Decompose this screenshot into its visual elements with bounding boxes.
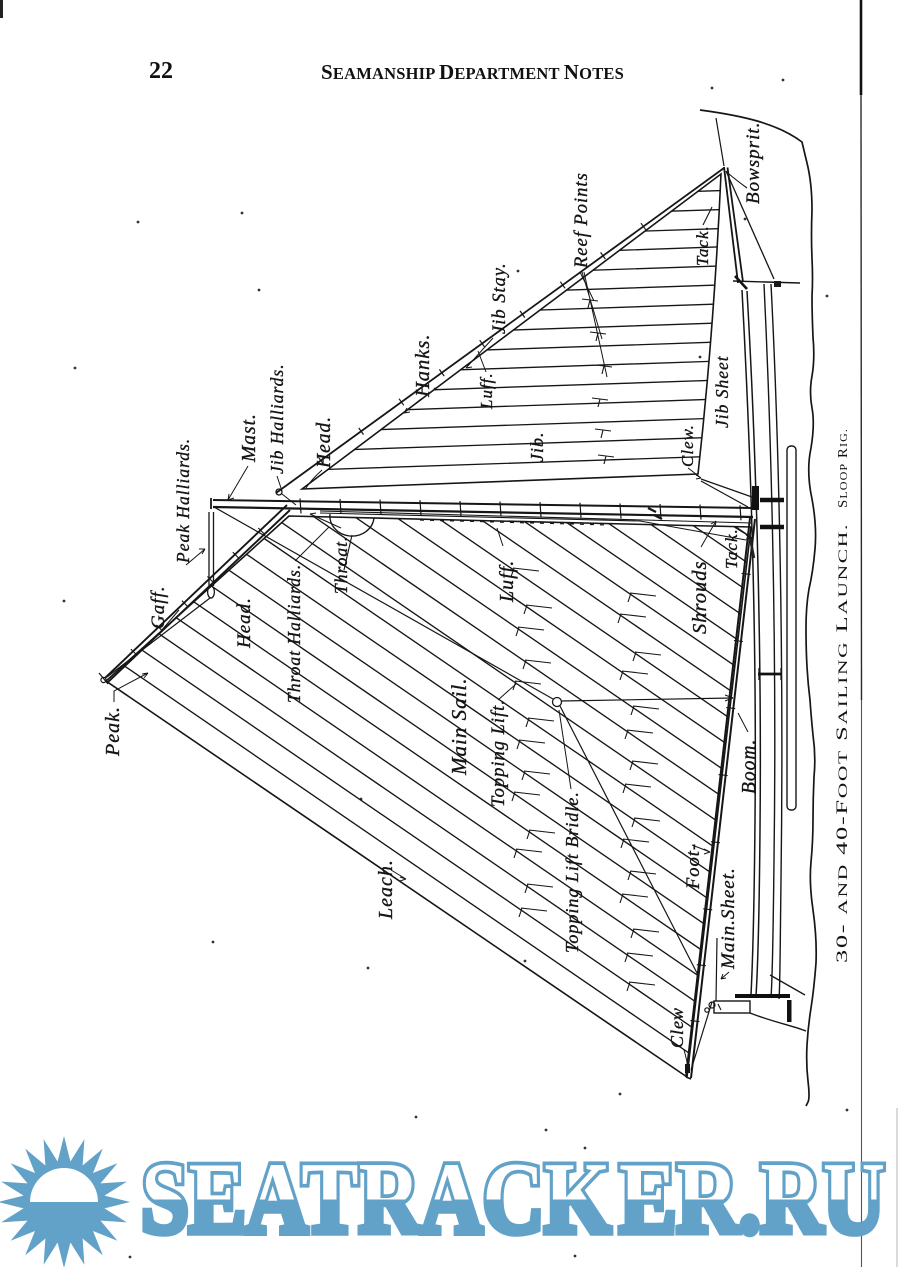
svg-text:Hanks.: Hanks. — [412, 333, 434, 398]
svg-text:Peak Halliards.: Peak Halliards. — [173, 438, 193, 564]
svg-text:Throat Halliards.: Throat Halliards. — [284, 564, 304, 703]
svg-text:Throat.: Throat. — [331, 536, 351, 594]
svg-text:Leach.: Leach. — [375, 859, 397, 920]
svg-text:Main.Sheet.: Main.Sheet. — [718, 867, 739, 970]
svg-text:Boom.: Boom. — [739, 739, 760, 794]
svg-text:Head.: Head. — [314, 416, 335, 469]
svg-text:Foot-: Foot- — [684, 843, 704, 890]
svg-text:Jib.: Jib. — [527, 432, 547, 463]
svg-text:Tack.: Tack. — [722, 528, 741, 569]
svg-text:SLOOP RIG.: SLOOP RIG. — [835, 428, 850, 508]
svg-text:Clew.: Clew. — [678, 424, 697, 467]
svg-text:Mast.: Mast. — [239, 413, 260, 463]
svg-text:Bowsprit.: Bowsprit. — [743, 122, 764, 204]
svg-text:Main Sail.: Main Sail. — [447, 678, 471, 777]
svg-text:Jib Stay.: Jib Stay. — [490, 262, 510, 334]
svg-text:Clew: Clew — [667, 1007, 687, 1048]
svg-text:Topping Lift Bridle.: Topping Lift Bridle. — [562, 791, 582, 953]
svg-text:Luff.: Luff. — [477, 372, 496, 410]
svg-text:Topping Lift.: Topping Lift. — [489, 699, 509, 807]
svg-text:Peak.: Peak. — [102, 706, 124, 757]
svg-text:Shrouds: Shrouds — [689, 561, 711, 634]
svg-text:22: 22 — [149, 58, 173, 84]
svg-text:Reef Points: Reef Points — [572, 172, 592, 269]
svg-text:Gaff.: Gaff. — [148, 585, 169, 629]
svg-text:Jib Halliards.: Jib Halliards. — [267, 363, 287, 474]
svg-text:30- AND 40-FOOT SAILING LAUNCH: 30- AND 40-FOOT SAILING LAUNCH. — [834, 523, 851, 963]
svg-text:Head.: Head. — [234, 597, 255, 649]
svg-text:Tack.: Tack. — [693, 225, 712, 266]
svg-text:SEAMANSHIP DEPARTMENT NOTES: SEAMANSHIP DEPARTMENT NOTES — [321, 60, 624, 84]
svg-text:Jib Sheet: Jib Sheet — [712, 355, 732, 428]
svg-text:Luff.: Luff. — [496, 560, 518, 603]
